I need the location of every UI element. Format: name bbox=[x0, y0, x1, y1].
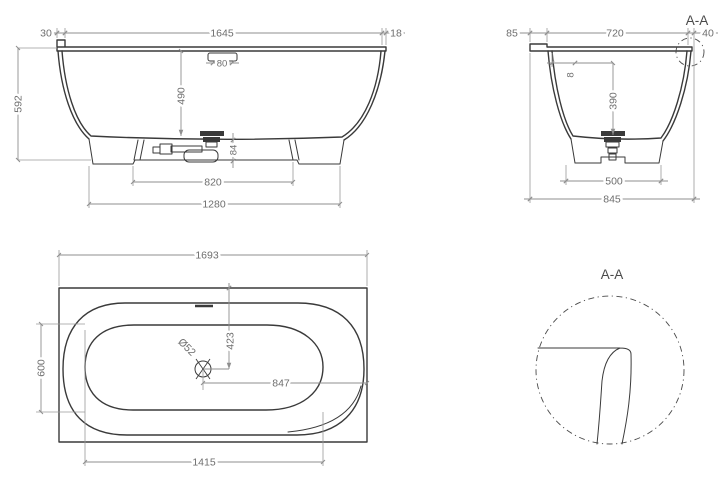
dim-front-base-length: 1280 bbox=[202, 199, 226, 211]
side-view: 85 720 40 8 390 500 845 A-A bbox=[505, 13, 718, 206]
front-view: 30 1645 18 592 490 80 84 820 1280 bbox=[13, 28, 406, 211]
dim-top-overall-length: 1693 bbox=[195, 250, 219, 262]
drain-flange bbox=[200, 131, 224, 136]
front-drain-assembly bbox=[153, 131, 224, 162]
dim-front-rim-right-step: 18 bbox=[390, 28, 402, 40]
dim-side-overall-width: 845 bbox=[603, 194, 621, 206]
drain-tailpiece bbox=[206, 142, 217, 147]
waste-fitting-plug bbox=[153, 147, 160, 153]
side-drain-flange-lower bbox=[604, 137, 621, 142]
dim-top-basin-width: 600 bbox=[36, 359, 48, 377]
front-rim-outline bbox=[57, 40, 386, 51]
side-shell-outline bbox=[548, 51, 691, 141]
dim-top-drain-to-back: 423 bbox=[225, 332, 237, 350]
dim-front-rim-length: 1645 bbox=[210, 28, 234, 40]
section-detail-label: A-A bbox=[601, 267, 624, 282]
dim-front-feet-spacing: 820 bbox=[204, 177, 222, 189]
top-rim-corner-sweep bbox=[288, 386, 361, 432]
section-detail-view: A-A bbox=[536, 267, 684, 444]
top-footprint-outline bbox=[59, 288, 367, 442]
dim-front-overflow-width: 80 bbox=[217, 59, 228, 70]
dim-top-drain-diameter: Ø52 bbox=[175, 336, 198, 359]
side-drain-tailpiece-1 bbox=[606, 142, 619, 147]
dim-top-drain-to-right: 847 bbox=[272, 378, 290, 390]
section-cut-label: A-A bbox=[686, 13, 709, 28]
dim-side-rim-right-overhang: 40 bbox=[702, 28, 714, 40]
side-drain-assembly bbox=[601, 131, 625, 160]
top-view: 1693 600 423 Ø52 847 1415 bbox=[36, 250, 368, 469]
dim-front-rim-left-step: 30 bbox=[40, 28, 52, 40]
dim-top-basin-length: 1415 bbox=[192, 457, 216, 469]
dim-front-basin-depth: 490 bbox=[176, 87, 188, 105]
section-detail-circle bbox=[536, 296, 684, 444]
drain-flange-lower bbox=[203, 137, 220, 142]
dim-side-rim-lip: 8 bbox=[566, 72, 577, 77]
side-rim-outline bbox=[530, 44, 692, 51]
rim-section-profile bbox=[538, 348, 631, 444]
side-drain-tailpiece-2 bbox=[608, 148, 617, 153]
dim-side-rim-left-overhang: 85 bbox=[506, 28, 518, 40]
waste-fitting bbox=[160, 144, 172, 154]
dim-side-base-width: 500 bbox=[605, 176, 623, 188]
dim-side-rim-width: 720 bbox=[606, 28, 624, 40]
dim-side-basin-depth: 390 bbox=[608, 92, 620, 110]
bathtub-technical-drawing: 30 1645 18 592 490 80 84 820 1280 bbox=[0, 0, 726, 479]
dim-front-drain-outlet-height: 84 bbox=[229, 145, 240, 156]
dim-front-overall-height: 592 bbox=[13, 95, 25, 113]
